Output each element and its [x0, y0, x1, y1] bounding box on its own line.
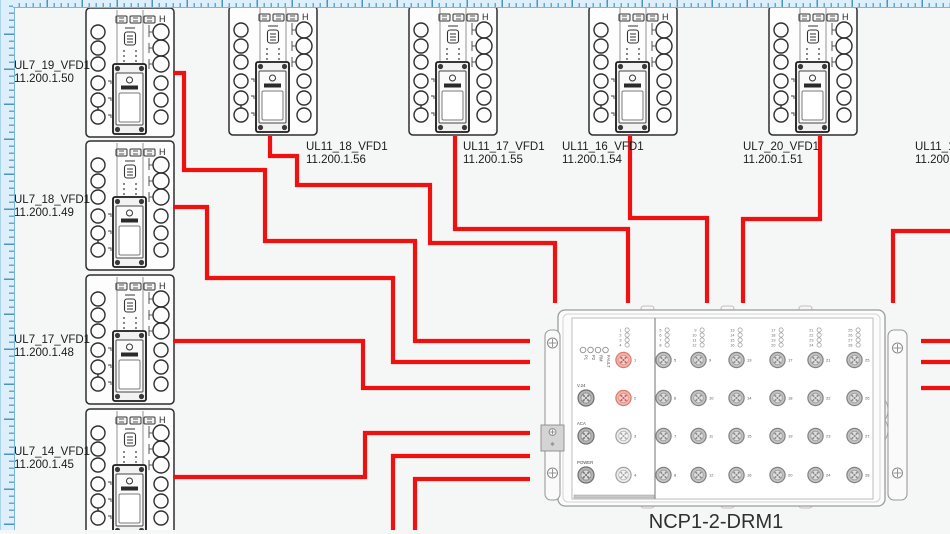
- port-number: 17: [788, 358, 793, 363]
- side-port-label: V.24: [577, 383, 586, 388]
- vfd-device-UL11_17_VFD1[interactable]: [409, 6, 497, 135]
- drm-port-22[interactable]: [808, 390, 823, 405]
- vfd-device-UL7_19_VFD1[interactable]: [86, 8, 174, 137]
- drm-port-3[interactable]: [616, 428, 631, 443]
- vertical-ruler: [0, 0, 15, 530]
- drm-port-8[interactable]: [656, 467, 671, 482]
- drm-port-4[interactable]: [616, 467, 631, 482]
- led-number: 28: [848, 344, 852, 348]
- port-number: 10: [709, 396, 714, 401]
- port-number: 12: [709, 473, 714, 478]
- led-number: 11: [693, 339, 697, 343]
- drm-port-17[interactable]: [770, 352, 785, 367]
- led-number: 7: [659, 339, 661, 343]
- drm-port-2[interactable]: [616, 390, 631, 405]
- drm-port-23[interactable]: [808, 428, 823, 443]
- led-number: 25: [848, 329, 852, 333]
- diagram-canvas: H: [0, 0, 950, 530]
- led-number: 5: [659, 329, 661, 333]
- vfd-device-UL7_20_VFD1[interactable]: [769, 6, 857, 135]
- led-number: 26: [848, 334, 852, 338]
- drm-port-25[interactable]: [847, 352, 862, 367]
- led-number: 20: [771, 344, 775, 348]
- led-number: 27: [848, 339, 852, 343]
- drm-port-26[interactable]: [847, 390, 862, 405]
- port-number: 16: [747, 473, 752, 478]
- led-number: 22: [809, 334, 813, 338]
- drm-port-14[interactable]: [729, 390, 744, 405]
- led-number: 12: [692, 344, 696, 348]
- drm-port-1[interactable]: [616, 352, 631, 367]
- port-number: 25: [865, 358, 870, 363]
- led-number: 21: [809, 329, 813, 333]
- drm-port-5[interactable]: [656, 352, 671, 367]
- drm-port-18[interactable]: [770, 390, 785, 405]
- port-number: 27: [865, 434, 870, 439]
- led-number: 2: [619, 334, 621, 338]
- port-number: 26: [865, 396, 870, 401]
- led-number: 24: [809, 344, 813, 348]
- led-number: 10: [692, 334, 696, 338]
- port-number: 14: [747, 396, 752, 401]
- side-port-V.24[interactable]: [578, 390, 594, 406]
- vfd-device-UL7_17_VFD1[interactable]: [86, 275, 174, 404]
- drm-port-27[interactable]: [847, 428, 862, 443]
- led-number: 13: [730, 329, 734, 333]
- drm-port-15[interactable]: [729, 428, 744, 443]
- drm-port-19[interactable]: [770, 428, 785, 443]
- cable-UL11_14[interactable]: [893, 231, 950, 303]
- port-number: 23: [826, 434, 831, 439]
- drm-port-12[interactable]: [691, 467, 706, 482]
- led-number: 14: [730, 334, 734, 338]
- led-number: 4: [619, 344, 621, 348]
- port-number: 15: [747, 434, 752, 439]
- vfd-device-UL7_14_VFD1[interactable]: [86, 409, 174, 530]
- port-number: 18: [788, 396, 793, 401]
- drm-port-6[interactable]: [656, 390, 671, 405]
- drm-port-16[interactable]: [729, 467, 744, 482]
- drm-port-7[interactable]: [656, 428, 671, 443]
- drm-port-13[interactable]: [729, 352, 744, 367]
- led-number: 18: [771, 334, 775, 338]
- drm-port-28[interactable]: [847, 467, 862, 482]
- cable-UL7_20_VFD1[interactable]: [743, 136, 820, 303]
- led-number: 3: [619, 339, 621, 343]
- led-number: 19: [771, 339, 775, 343]
- port-number: 20: [788, 473, 793, 478]
- port-number: 19: [788, 434, 793, 439]
- drm-switch[interactable]: P1P2RMFAULT11223344556677889910101111121…: [541, 306, 907, 508]
- side-port-POWER[interactable]: [578, 467, 594, 483]
- status-led-label: P1: [584, 355, 589, 361]
- vfd-device-UL11_16_VFD1[interactable]: [589, 6, 677, 135]
- led-number: 9: [694, 329, 696, 333]
- cable-UL11_16_VFD1[interactable]: [630, 136, 707, 303]
- drm-port-20[interactable]: [770, 467, 785, 482]
- led-number: 16: [730, 344, 734, 348]
- led-number: 15: [730, 339, 734, 343]
- drm-port-10[interactable]: [691, 390, 706, 405]
- led-number: 6: [659, 334, 661, 338]
- drm-port-24[interactable]: [808, 467, 823, 482]
- cable-UL11_17_VFD1[interactable]: [455, 136, 628, 303]
- status-led-label: FAULT: [606, 355, 611, 368]
- led-number: 1: [619, 329, 621, 333]
- status-led-label: P2: [591, 355, 596, 361]
- vfd-device-UL11_18_VFD1[interactable]: [229, 6, 317, 135]
- topology-scene: H: [0, 0, 950, 530]
- status-led-label: RM: [599, 355, 604, 362]
- led-number: 8: [659, 344, 661, 348]
- drm-port-11[interactable]: [691, 428, 706, 443]
- port-number: 22: [826, 396, 831, 401]
- drm-port-21[interactable]: [808, 352, 823, 367]
- port-number: 24: [826, 473, 831, 478]
- led-number: 17: [771, 329, 775, 333]
- port-number: 28: [865, 473, 870, 478]
- cable-UL7_17_VFD1[interactable]: [173, 341, 530, 388]
- side-port-ACA[interactable]: [578, 428, 594, 444]
- horizontal-ruler: [13, 0, 950, 8]
- side-port-label: POWER: [577, 460, 593, 465]
- side-port-label: ACA: [577, 421, 586, 426]
- cable-bottom-stub-2[interactable]: [415, 479, 530, 530]
- port-number: 21: [826, 358, 831, 363]
- led-number: 23: [809, 339, 813, 343]
- drm-port-9[interactable]: [691, 352, 706, 367]
- vfd-device-UL7_18_VFD1[interactable]: [86, 141, 174, 270]
- port-number: 13: [747, 358, 752, 363]
- drm-label: NCP1-2-DRM1: [541, 511, 891, 534]
